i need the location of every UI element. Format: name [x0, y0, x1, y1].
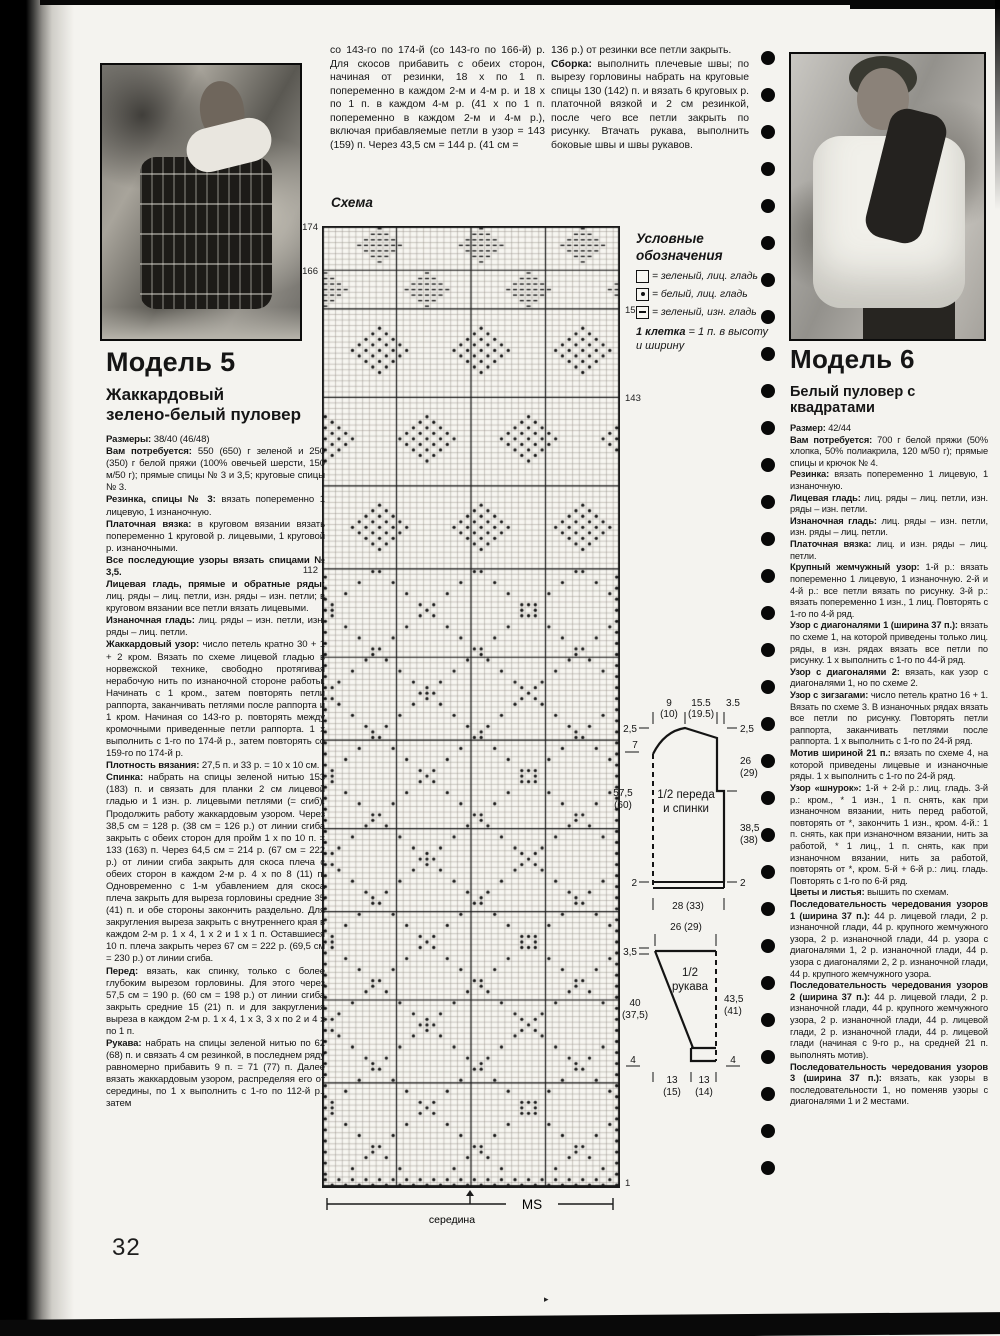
measure-label: 2 [631, 878, 637, 889]
instruction-paragraph: Узор с зигзагами: число петель кратно 16… [790, 690, 988, 748]
magazine-page: со 143-го по 174-й (со 143-го по 166-й) … [0, 0, 1000, 1336]
piece-label: 1/2 [682, 967, 698, 979]
measure-label: 43,5 [724, 994, 744, 1005]
punch-hole [761, 643, 775, 657]
measure-label: (19.5) [688, 709, 714, 720]
punch-hole [761, 88, 775, 102]
measure-label: 4 [730, 1055, 736, 1066]
measure-label: 2,5 [623, 724, 637, 735]
punch-hole [761, 495, 775, 509]
measure-label: 2,5 [740, 724, 754, 735]
measure-label: 13 [666, 1075, 678, 1086]
measure-label: 7 [632, 740, 638, 751]
legend-title: Условные обозначения [636, 231, 774, 265]
empty-square-icon [636, 270, 649, 283]
model6-subtitle: Белый пуловер с квадратами [790, 384, 988, 416]
measure-label: (41) [724, 1006, 742, 1017]
print-speck: ▸ [544, 1294, 549, 1305]
legend-item: = зеленый, лиц. гладь [636, 270, 774, 283]
measure-label: 40 [629, 998, 641, 1009]
punch-hole [761, 865, 775, 879]
punch-hole [761, 939, 775, 953]
center-marker: MS середина [320, 1190, 622, 1246]
measure-label: 15.5 [691, 698, 711, 709]
model5-instructions: Размеры: 38/40 (46/48)Вам потребуется: 5… [106, 434, 325, 1110]
instruction-paragraph: Мотив шириной 21 п.: вязать по схеме 4, … [790, 748, 988, 783]
model5-subtitle: Жаккардовый зелено-белый пуловер [106, 385, 325, 425]
punch-hole [761, 791, 775, 805]
measure-label: 3.5 [726, 698, 740, 709]
instruction-paragraph: 136 р.) от резинки все петли закрыть. [551, 44, 749, 58]
instruction-paragraph: Спинка: набрать на спицы зеленой нитью 1… [106, 772, 325, 965]
measure-label: 2 [740, 878, 746, 889]
measure-label: (10) [660, 709, 678, 720]
instruction-paragraph: Изнаночная гладь: лиц. ряды – изн. петли… [106, 615, 325, 639]
instruction-paragraph: Все последующие узоры вязать спицами № 3… [106, 555, 325, 579]
instruction-paragraph: Размер: 42/44 [790, 423, 988, 435]
instruction-paragraph: Жаккардовый узор: число петель кратно 30… [106, 639, 325, 760]
page-right-edge [995, 0, 1000, 210]
measure-label: (38) [740, 835, 758, 846]
punch-hole [761, 458, 775, 472]
measure-label: 9 [666, 698, 672, 709]
punch-hole [761, 606, 775, 620]
measure-label: (14) [695, 1087, 713, 1098]
instruction-paragraph: Крупный жемчужный узор: 1-й р.: вязать п… [790, 562, 988, 620]
punch-hole [761, 1124, 775, 1138]
continuation-paragraph: со 143-го по 174-й (со 143-го по 166-й) … [330, 44, 545, 152]
instruction-paragraph: Изнаночная гладь: лиц. ряды – изн. петли… [790, 516, 988, 539]
model6-photo [789, 52, 986, 341]
center-label: середина [429, 1214, 475, 1226]
measure-label: 38,5 [740, 823, 760, 834]
measure-label: 4 [630, 1055, 636, 1066]
punch-hole [761, 902, 775, 916]
punch-hole [761, 384, 775, 398]
binding-edge [0, 0, 78, 1336]
dot-square-icon [636, 288, 649, 301]
measure-label: (29) [740, 768, 758, 779]
piece-label: рукава [672, 981, 709, 993]
instruction-paragraph: Вам потребуется: 550 (650) г зеленой и 2… [106, 446, 325, 494]
model5-photo [100, 63, 302, 341]
chart-row-label: 143 [625, 393, 641, 404]
legend-item: = белый, лиц. гладь [636, 288, 774, 301]
knit-chart: MS середина 1741661121591431 [322, 226, 620, 1188]
measure-label: (15) [663, 1087, 681, 1098]
punch-hole [761, 532, 775, 546]
punch-hole [761, 1161, 775, 1175]
model6-title: Модель 6 [790, 344, 988, 375]
punch-hole [761, 1087, 775, 1101]
ms-label: MS [522, 1197, 542, 1212]
page-bottom-edge [0, 1312, 1000, 1336]
arrow-up-icon [466, 1190, 474, 1196]
punch-hole [761, 421, 775, 435]
instruction-paragraph: Узор с диагоналями 2: вязать, как узор с… [790, 667, 988, 690]
punch-hole [761, 754, 775, 768]
model6-instructions: Размер: 42/44Вам потребуется: 700 г бело… [790, 423, 988, 1108]
punch-hole [761, 828, 775, 842]
instruction-paragraph: Цветы и листья: вышить по схемам. [790, 887, 988, 899]
photo-sweater [140, 157, 272, 309]
chart-title: Схема [331, 195, 373, 210]
instruction-paragraph: Перед: вязать, как спинку, только с боле… [106, 966, 325, 1038]
instruction-paragraph: Рукава: набрать на спицы зеленой нитью п… [106, 1038, 325, 1110]
instruction-paragraph: Лицевая гладь: лиц. ряды – лиц. петли, и… [790, 493, 988, 516]
instruction-paragraph: Сборка: выполнить плечевые швы; по вырез… [551, 58, 749, 153]
punch-hole [761, 310, 775, 324]
punch-hole [761, 347, 775, 361]
instruction-paragraph: Последовательность чередования узоров 3 … [790, 1062, 988, 1108]
punch-hole [761, 1013, 775, 1027]
punch-hole [761, 976, 775, 990]
instruction-paragraph: Размеры: 38/40 (46/48) [106, 434, 325, 446]
punch-hole [761, 680, 775, 694]
instruction-paragraph: Лицевая гладь, прямые и обратные ряды: л… [106, 579, 325, 615]
instruction-paragraph: Платочная вязка: в круговом вязании вяза… [106, 519, 325, 555]
model6-section: Модель 6 Белый пуловер с квадратами Разм… [790, 344, 988, 1108]
chart-legend: Условные обозначения = зеленый, лиц. гла… [636, 231, 774, 353]
measure-label: (60) [614, 800, 632, 811]
punch-hole [761, 236, 775, 250]
measure-label: 26 [740, 756, 752, 767]
punch-hole [761, 162, 775, 176]
instruction-paragraph: Резинка, спицы № 3: вязать попеременно 1… [106, 494, 325, 518]
piece-label: и спинки [663, 803, 709, 815]
knit-chart-canvas [322, 226, 620, 1188]
punch-hole [761, 51, 775, 65]
pattern-schematics: 9 (10) 15.5 (19.5) 3.5 2,5 7 57,5 (60) 2… [593, 676, 775, 1108]
chart-row-label: 1 [625, 1178, 630, 1189]
measure-label: 13 [698, 1075, 710, 1086]
instruction-paragraph: Узор с диагоналями 1 (ширина 37 п.): вяз… [790, 620, 988, 666]
punch-hole-strip [761, 51, 775, 1175]
instruction-paragraph: Платочная вязка: лиц. и изн. ряды – лиц.… [790, 539, 988, 562]
instruction-paragraph: Плотность вязания: 27,5 п. и 33 р. = 10 … [106, 760, 325, 772]
photo-ground [102, 307, 300, 339]
dash-square-icon [636, 306, 649, 319]
model5-title: Модель 5 [106, 347, 325, 378]
measure-label: 28 (33) [672, 901, 704, 912]
punch-hole [761, 717, 775, 731]
assembly-column: 136 р.) от резинки все петли закрыть.Сбо… [551, 44, 749, 152]
chart-row-label: 166 [294, 266, 318, 277]
page-top-right-edge [850, 0, 1000, 9]
chart-row-label: 174 [294, 222, 318, 233]
measure-label: 26 (29) [670, 922, 702, 933]
instruction-paragraph: Последовательность чередования узоров 2 … [790, 980, 988, 1061]
piece-label: 1/2 переда [657, 789, 715, 801]
measure-label: 3,5 [623, 947, 637, 958]
punch-hole [761, 199, 775, 213]
instruction-paragraph: Последовательность чередования узоров 1 … [790, 899, 988, 980]
model5-section: Модель 5 Жаккардовый зелено-белый пулове… [106, 347, 325, 1110]
measure-label: 57,5 [613, 788, 633, 799]
measure-label: (37,5) [622, 1010, 648, 1021]
punch-hole [761, 125, 775, 139]
legend-note: 1 клетка = 1 п. в высоту и ширину [636, 325, 774, 354]
continuation-column: со 143-го по 174-й (со 143-го по 166-й) … [330, 44, 545, 152]
punch-hole [761, 569, 775, 583]
instruction-paragraph: Узор «шнурок»: 1-й + 2-й р.: лиц. гладь.… [790, 783, 988, 887]
instruction-paragraph: Вам потребуется: 700 г белой пряжи (50% … [790, 435, 988, 470]
punch-hole [761, 273, 775, 287]
punch-hole [761, 1050, 775, 1064]
instruction-paragraph: Резинка: вязать попеременно 1 лицевую, 1… [790, 469, 988, 492]
page-number: 32 [112, 1234, 141, 1262]
legend-item: = зеленый, изн. гладь [636, 306, 774, 319]
